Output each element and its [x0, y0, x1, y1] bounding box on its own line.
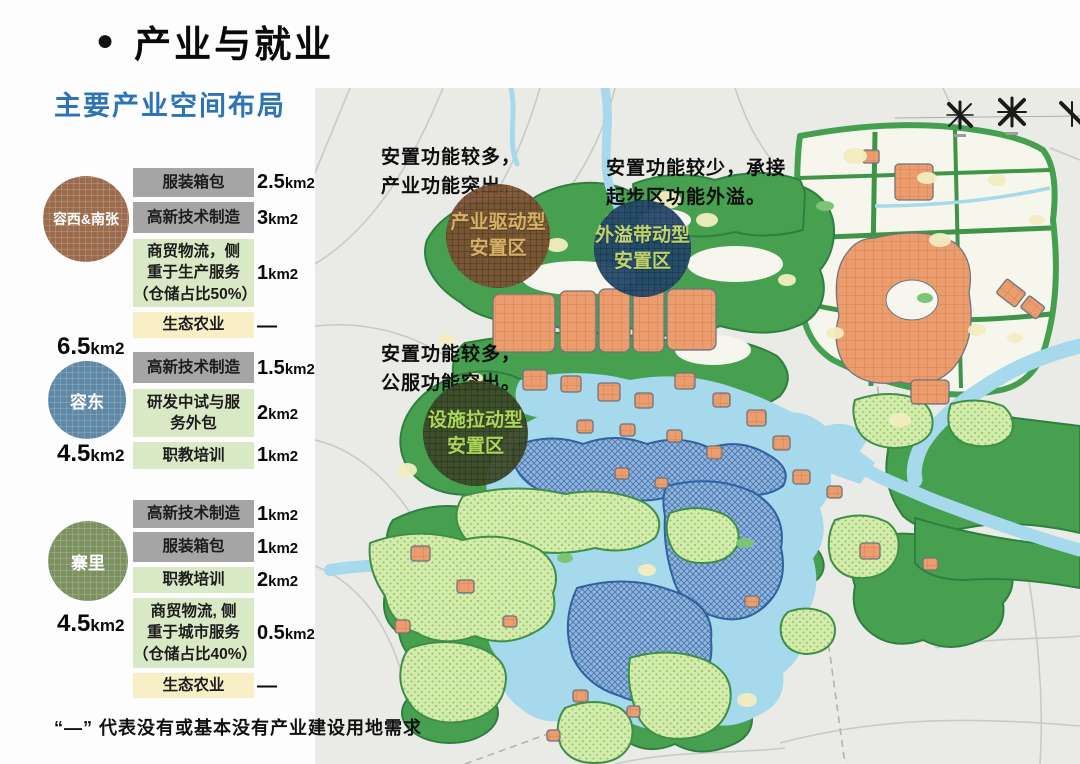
group-circle-rongdong: 容东	[48, 361, 126, 439]
footer-note: “—” 代表没有或基本没有产业建设用地需求	[54, 714, 422, 740]
industry-row-box: 生态农业	[133, 312, 254, 338]
group-total-rongdong: 4.5km2	[57, 440, 124, 468]
industry-row-value: —	[257, 311, 327, 339]
industry-label: 商贸物流，侧 重于生产服务 （仓储占比50%）	[133, 241, 254, 305]
industry-row-value: —	[257, 671, 327, 699]
industry-label: 职教培训	[162, 569, 224, 590]
group-total-zhaili: 4.5km2	[57, 610, 124, 638]
zone-circle-spillover-driven: 外溢带动型 安置区	[594, 200, 691, 297]
industry-row-box: 高新技术制造	[133, 352, 254, 383]
industry-row-box: 服装箱包	[133, 168, 254, 197]
zone-circle-industry-driven: 产业驱动型 安置区	[446, 184, 550, 288]
page-title-row: ● 产业与就业	[96, 14, 334, 68]
bullet-icon: ●	[96, 26, 114, 56]
total-unit: km2	[90, 446, 124, 465]
total-value: 6.5	[57, 333, 90, 360]
page-title: 产业与就业	[134, 14, 334, 68]
industry-row-value: 1km2	[257, 500, 327, 528]
total-unit: km2	[90, 339, 124, 358]
industry-row-value: 2.5km2	[257, 168, 327, 196]
industry-row-value: 1.5km2	[257, 354, 327, 382]
section-subtitle: 主要产业空间布局	[54, 84, 286, 123]
industry-row-box: 研发中试与服 务外包	[133, 389, 254, 437]
zone-circle-facility-driven: 设施拉动型 安置区	[423, 381, 528, 486]
group-circle-rongxi-nanzhang: 容西&南张	[43, 176, 129, 262]
industry-label: 生态农业	[162, 675, 224, 696]
total-value: 4.5	[57, 610, 90, 637]
industry-row-value: 1km2	[257, 259, 327, 287]
industry-row-box: 职教培训	[133, 567, 254, 593]
industry-row-value: 0.5km2	[257, 619, 327, 647]
industry-label: 职教培训	[162, 445, 224, 466]
industry-label: 服装箱包	[162, 536, 224, 557]
industry-row-value: 3km2	[257, 204, 327, 232]
industry-row-box: 生态农业	[133, 673, 254, 698]
industry-row-value: 1km2	[257, 533, 327, 561]
industry-label: 研发中试与服 务外包	[147, 392, 240, 435]
industry-row-box: 高新技术制造	[133, 500, 254, 528]
industry-row-value: 2km2	[257, 566, 327, 594]
industry-row-box: 高新技术制造	[133, 202, 254, 233]
industry-row-box: 商贸物流, 侧 重于城市服务 （仓储占比40%）	[133, 598, 254, 668]
industry-row-value: 2km2	[257, 399, 327, 427]
industry-row-value: 1km2	[257, 441, 327, 469]
group-circle-zhaili: 寨里	[48, 521, 128, 601]
industry-row-box: 职教培训	[133, 442, 254, 469]
industry-label: 服装箱包	[162, 172, 224, 193]
industry-label: 商贸物流, 侧 重于城市服务 （仓储占比40%）	[133, 601, 254, 665]
industry-row-box: 商贸物流，侧 重于生产服务 （仓储占比50%）	[133, 239, 254, 307]
industry-label: 高新技术制造	[147, 357, 240, 378]
industry-label: 生态农业	[162, 314, 224, 335]
total-unit: km2	[90, 616, 124, 635]
industry-label: 高新技术制造	[147, 207, 240, 228]
industry-row-box: 服装箱包	[133, 532, 254, 562]
total-value: 4.5	[57, 440, 90, 467]
slide: ● 产业与就业 主要产业空间布局	[0, 0, 1080, 764]
group-total-rongxi: 6.5km2	[57, 333, 124, 361]
industry-label: 高新技术制造	[147, 503, 240, 524]
